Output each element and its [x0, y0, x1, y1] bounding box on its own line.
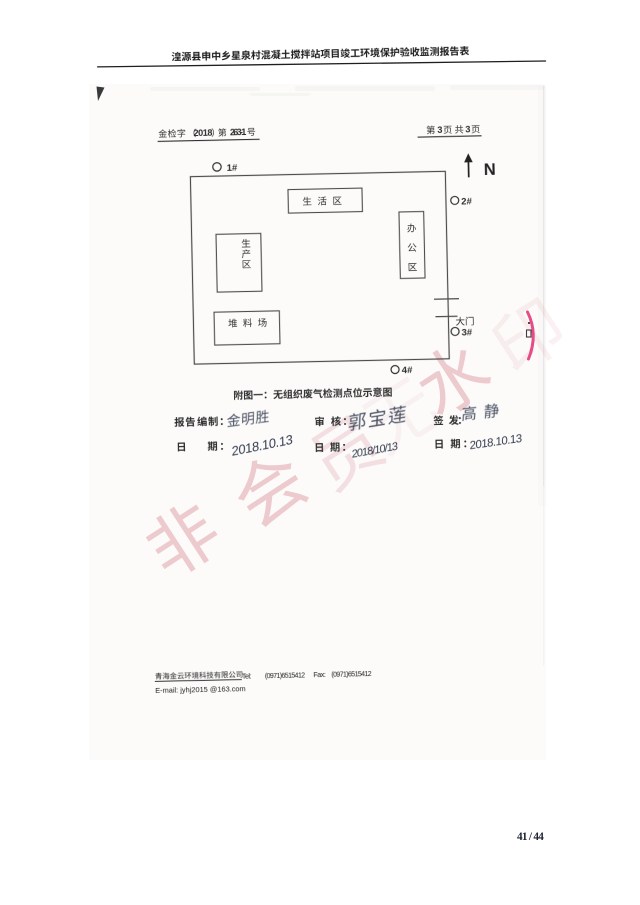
svg-text:41 / 44: 41 / 44	[517, 831, 544, 843]
svg-text:N: N	[484, 161, 496, 179]
svg-text:3: 3	[465, 124, 470, 134]
svg-text:3#: 3#	[461, 327, 473, 338]
svg-text:3: 3	[437, 125, 442, 135]
svg-text:E-mail: jyhj2015 @163.com: E-mail: jyhj2015 @163.com	[155, 684, 246, 695]
svg-text:263-1: 263-1	[230, 127, 246, 137]
svg-text:4#: 4#	[402, 365, 414, 376]
svg-text:(0971)6515412: (0971)6515412	[265, 673, 306, 681]
svg-text:(0971)6515412: (0971)6515412	[331, 671, 372, 679]
svg-text:1#: 1#	[227, 162, 239, 173]
svg-text:2018: 2018	[193, 128, 212, 138]
svg-text:2#: 2#	[461, 196, 473, 207]
svg-text:Tel:: Tel:	[242, 672, 252, 681]
svg-text:Fax:: Fax:	[313, 670, 326, 679]
